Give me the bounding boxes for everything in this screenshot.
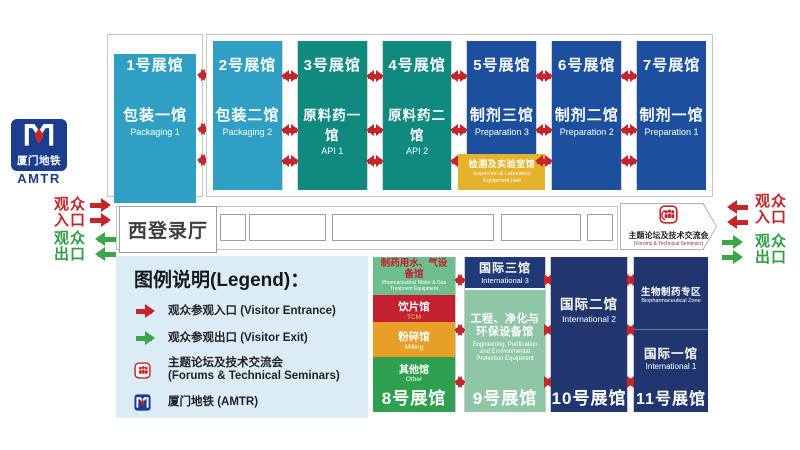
corridor-room: [220, 214, 246, 241]
hall-number: 1号展馆: [114, 54, 196, 75]
hall-7: 7号展馆 制剂一馆 Preparation 1: [637, 41, 706, 190]
amtr-metro-logo: 厦门地铁 AMTR: [10, 119, 68, 186]
entrance-arrow-icon: [730, 205, 748, 210]
transfer-arrow-icon: [537, 128, 551, 133]
legend-title: 图例说明(Legend)：: [134, 265, 368, 292]
transfer-arrow-icon: [622, 128, 636, 133]
hall-4: 4号展馆 原料药二馆 API 2: [383, 41, 452, 190]
hall-3: 3号展馆 原料药一馆 API 1: [298, 41, 367, 190]
corridor-room: [332, 214, 494, 241]
left-visitor-entrance-label: 观众 入口: [52, 197, 88, 229]
hall-8-water-gas-section: 制药用水、气设备馆 Pharmaceutical Water & Gas Tre…: [373, 257, 455, 295]
exit-arrow-icon: [98, 252, 116, 257]
hall-number: 10号展馆: [551, 384, 627, 409]
metro-m-icon: 厦门地铁: [11, 119, 67, 171]
metro-abbr: AMTR: [10, 171, 68, 186]
corridor: [282, 41, 298, 190]
forum-people-icon: [659, 205, 678, 224]
entrance-arrow-icon: [90, 218, 108, 223]
transfer-arrow-icon: [546, 380, 550, 385]
hall-number: 8号展馆: [373, 384, 455, 409]
legend-forum-icon: [134, 362, 168, 378]
west-registration-hall: 西登录厅: [119, 206, 217, 253]
halls-2-7-group: 2号展馆 包装二馆 Packaging 2 3号展馆 原料药一馆 API 1 4…: [206, 34, 713, 197]
exit-arrow-icon: [722, 240, 740, 245]
legend-metro-icon: [134, 394, 168, 410]
hall-5: 5号展馆 制剂三馆 Preparation 3 检测及实验室馆 Inspecti…: [467, 41, 536, 190]
transfer-arrow-icon: [283, 74, 297, 79]
transfer-arrow-icon: [628, 328, 633, 333]
exit-arrow-icon: [722, 255, 740, 260]
corridor: [367, 41, 383, 190]
hall-number: 11号展馆: [634, 385, 708, 409]
transfer-arrow-icon: [456, 328, 464, 333]
transfer-arrow-icon: [628, 380, 633, 385]
halls-8-11-group: 制药用水、气设备馆 Pharmaceutical Water & Gas Tre…: [373, 257, 708, 412]
right-visitor-exit-label: 观众 出口: [753, 234, 789, 266]
forum-label-cn: 主题论坛及技术交流会: [620, 230, 717, 241]
corridor-room: [501, 214, 581, 241]
transfer-arrow-icon: [622, 159, 636, 164]
exit-arrow-icon: [98, 237, 116, 242]
hall-number: 9号展馆: [465, 384, 545, 409]
transfer-arrow-icon: [456, 278, 464, 283]
international-1-hall: 国际一馆 International 1 11号展馆: [634, 330, 708, 412]
transfer-arrow-icon: [537, 74, 551, 79]
legend: 图例说明(Legend)： 观众参观入口 (Visitor Entrance) …: [116, 256, 368, 418]
legend-forum-label: 主题论坛及技术交流会 (Forums & Technical Seminars): [168, 357, 340, 383]
transfer-arrow-icon: [283, 128, 297, 133]
hall-name-en: Packaging 1: [114, 127, 196, 137]
entrance-arrow-icon: [90, 203, 108, 208]
hall-6: 6号展馆 制剂二馆 Preparation 2: [552, 41, 621, 190]
forum-seminars-box: 主题论坛及技术交流会 (Forums & Technical Seminars): [620, 203, 717, 250]
hall-1: 1号展馆 包装一馆 Packaging 1: [107, 34, 203, 197]
engineering-purification-hall: 工程、净化与环保设备馆 Engineering, Purification an…: [465, 290, 545, 412]
hall-8-milling-section: 粉碎馆 Milling: [373, 322, 455, 357]
hall-8: 制药用水、气设备馆 Pharmaceutical Water & Gas Tre…: [373, 257, 455, 412]
hall-9: 国际三馆 International 3 工程、净化与环保设备馆 Enginee…: [465, 257, 545, 412]
corridor: [627, 257, 634, 412]
transfer-arrow-icon: [368, 159, 382, 164]
entrance-arrow-icon: [730, 220, 748, 225]
transfer-arrow-icon: [368, 128, 382, 133]
corridor: [455, 257, 465, 412]
transfer-arrow-icon: [452, 128, 466, 133]
transfer-arrow-icon: [546, 328, 550, 333]
legend-exit-label: 观众参观出口 (Visitor Exit): [168, 332, 308, 345]
hall-8-other-section: 其他馆 Other 8号展馆: [373, 357, 455, 412]
legend-exit-arrow-icon: [134, 330, 168, 346]
transfer-arrow-icon: [452, 74, 466, 79]
hall-10: 国际二馆 International 2 10号展馆: [551, 257, 627, 412]
transfer-arrow-icon: [546, 278, 550, 283]
legend-entrance-arrow-icon: [134, 303, 168, 319]
transfer-arrow-icon: [283, 159, 297, 164]
hall-8-tcm-section: 饮片馆 TCM: [373, 295, 455, 322]
left-visitor-exit-label: 观众 出口: [52, 231, 88, 263]
exhibition-floor-plan: 厦门地铁 AMTR 观众 入口 观众 出口 1号展馆 包装一馆 Packagin…: [0, 0, 800, 450]
metro-name: 厦门地铁: [11, 153, 67, 168]
legend-entrance-label: 观众参观入口 (Visitor Entrance): [168, 305, 336, 318]
hall-name-cn: 包装一馆: [114, 104, 196, 125]
corridor-room: [249, 214, 326, 241]
international-3-hall: 国际三馆 International 3: [465, 257, 545, 288]
transfer-arrow-icon: [628, 278, 633, 283]
biopharmaceutical-zone: 生物制药专区 Biopharmaceutical Zone: [634, 257, 708, 330]
transfer-arrow-icon: [368, 74, 382, 79]
transfer-arrow-icon: [537, 159, 551, 164]
corridor-room: [587, 214, 613, 241]
corridor: [621, 41, 637, 190]
hall-11: 生物制药专区 Biopharmaceutical Zone 国际一馆 Inter…: [634, 257, 708, 412]
right-visitor-entrance-label: 观众 入口: [753, 194, 789, 226]
forum-label-en: (Forums & Technical Seminars): [620, 241, 717, 247]
legend-metro-label: 厦门地铁 (AMTR): [168, 396, 258, 409]
transfer-arrow-icon: [456, 380, 464, 385]
transfer-arrow-icon: [622, 74, 636, 79]
hall-2: 2号展馆 包装二馆 Packaging 2: [213, 41, 282, 190]
